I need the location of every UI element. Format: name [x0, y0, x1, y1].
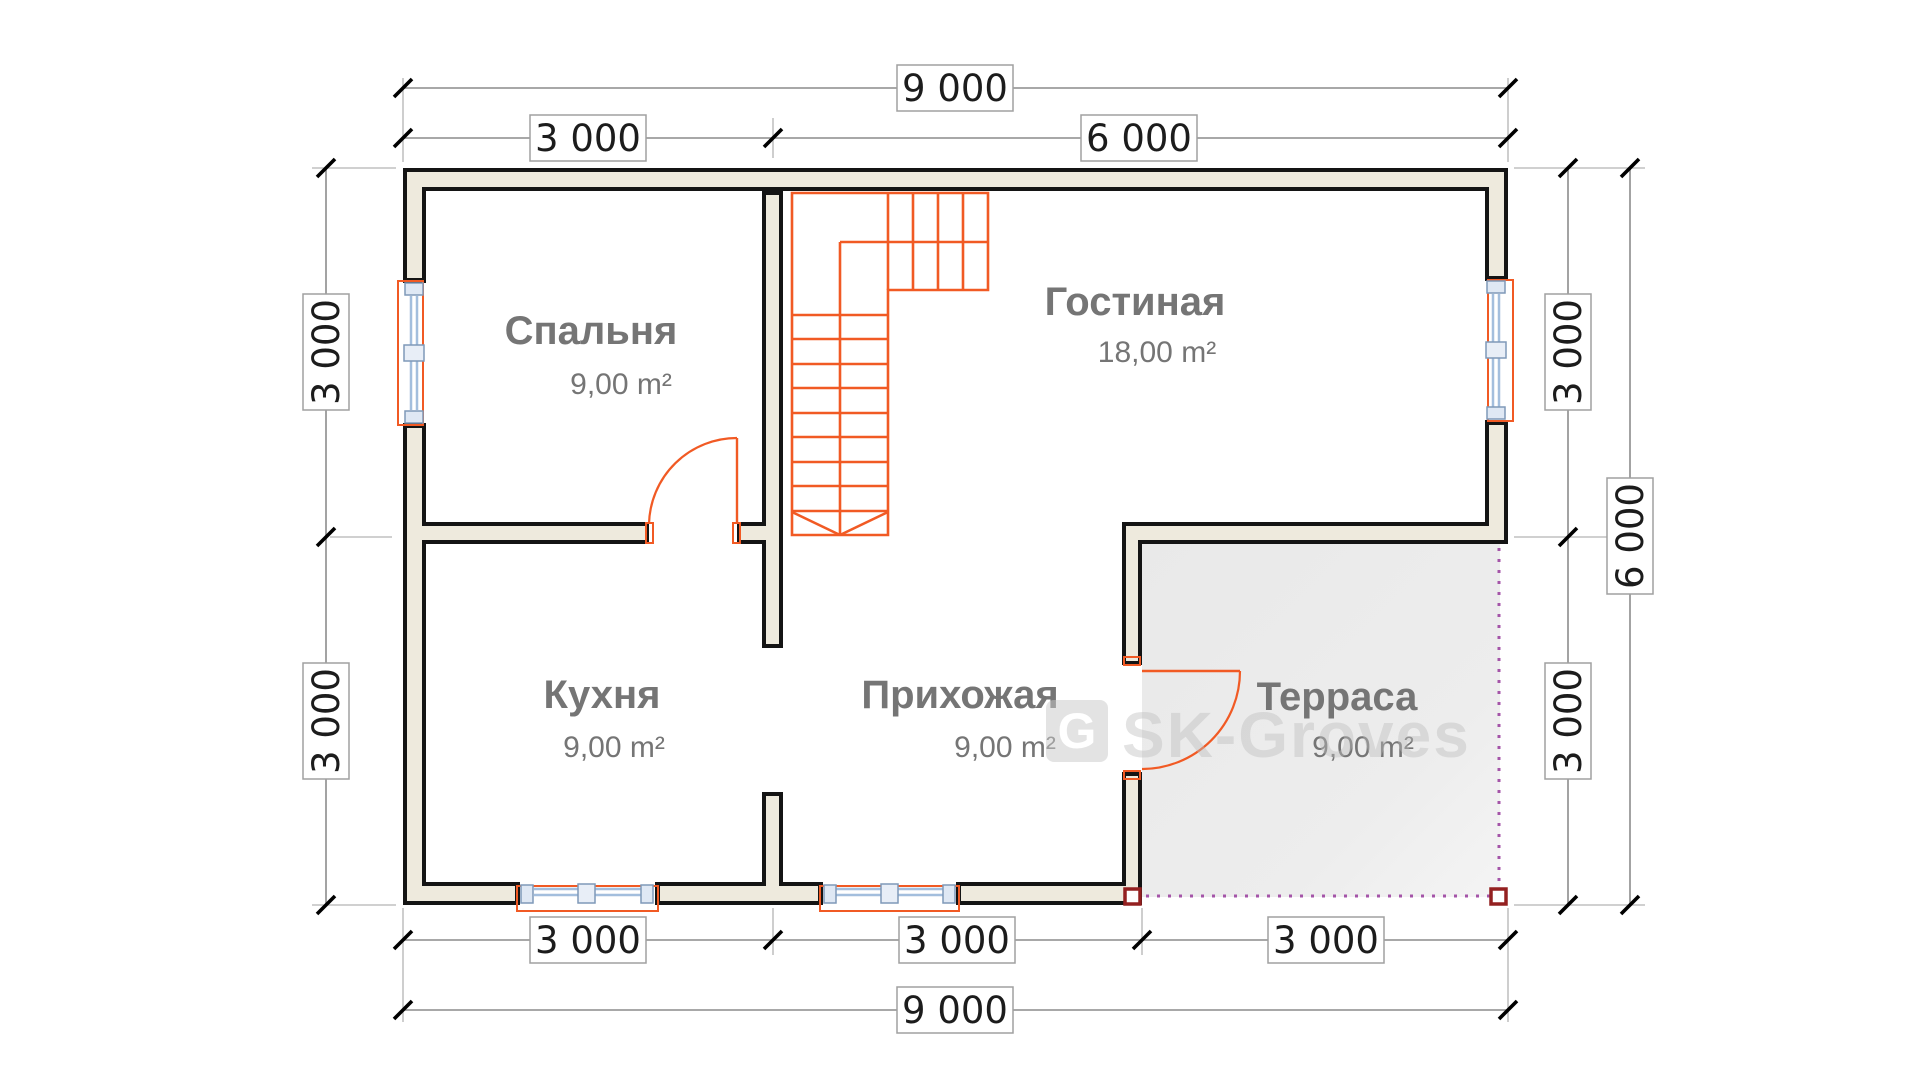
- dim-top-right-text: 6 000: [1086, 117, 1192, 160]
- room-label-bedroom: Спальня 9,00 m²: [505, 309, 678, 401]
- door-bedroom: [646, 438, 740, 543]
- room-label-kitchen: Кухня 9,00 m²: [544, 673, 665, 764]
- dim-bottom-1: 3 000: [530, 917, 646, 963]
- room-name-kitchen: Кухня: [544, 673, 661, 717]
- room-name-hall: Прихожая: [861, 673, 1058, 717]
- dim-left-bottom-text: 3 000: [305, 668, 348, 774]
- dim-top-left: 3 000: [530, 115, 646, 161]
- dim-bottom-total-text: 9 000: [902, 989, 1008, 1032]
- floor-plan-image: 9 000 3 000 6 000 3 000 3 000 3 000 9 00…: [0, 0, 1920, 1080]
- dim-bottom-total: 9 000: [897, 987, 1013, 1033]
- dim-right-bottom-text: 3 000: [1547, 668, 1590, 774]
- dim-right-total: 6 000: [1607, 478, 1653, 594]
- dim-top-right: 6 000: [1081, 115, 1197, 161]
- dim-right-bottom: 3 000: [1545, 663, 1591, 779]
- dim-left-top: 3 000: [303, 294, 349, 410]
- watermark-text: SK-Groves: [1122, 699, 1471, 771]
- window-living: [1484, 276, 1513, 425]
- dim-left-top-text: 3 000: [305, 299, 348, 405]
- dim-right-top: 3 000: [1545, 294, 1591, 410]
- room-label-hall: Прихожая 9,00 m²: [861, 673, 1058, 764]
- terrace-post-left: [1125, 889, 1140, 904]
- floor-plan-svg: 9 000 3 000 6 000 3 000 3 000 3 000 9 00…: [0, 0, 1920, 1080]
- terrace-post-right: [1491, 889, 1506, 904]
- watermark: G SK-Groves: [1046, 699, 1471, 771]
- stair-arrow-left: [792, 512, 840, 535]
- window-bedroom: [398, 278, 428, 428]
- dim-top-left-text: 3 000: [535, 117, 641, 160]
- room-area-living: 18,00 m²: [1098, 336, 1216, 369]
- dim-top-total-text: 9 000: [902, 67, 1008, 110]
- dim-bottom-3-text: 3 000: [1273, 919, 1379, 962]
- dim-right-total-text: 6 000: [1609, 483, 1652, 589]
- dim-bottom-3: 3 000: [1268, 917, 1384, 963]
- room-name-bedroom: Спальня: [505, 309, 678, 353]
- dim-bottom-2: 3 000: [899, 917, 1015, 963]
- stair-arrow-right: [840, 512, 888, 535]
- window-hall: [818, 881, 961, 911]
- room-name-living: Гостиная: [1045, 280, 1226, 324]
- room-area-bedroom: 9,00 m²: [570, 368, 672, 401]
- staircase: [792, 193, 988, 535]
- window-kitchen: [515, 881, 660, 911]
- dim-bottom-1-text: 3 000: [535, 919, 641, 962]
- room-area-hall: 9,00 m²: [954, 731, 1056, 764]
- dim-top-total: 9 000: [897, 65, 1013, 111]
- dim-left-bottom: 3 000: [303, 663, 349, 779]
- dim-right-top-text: 3 000: [1547, 299, 1590, 405]
- room-label-living: Гостиная 18,00 m²: [1045, 280, 1226, 369]
- watermark-logo-letter: G: [1058, 703, 1097, 759]
- dim-bottom-2-text: 3 000: [904, 919, 1010, 962]
- room-area-kitchen: 9,00 m²: [563, 731, 665, 764]
